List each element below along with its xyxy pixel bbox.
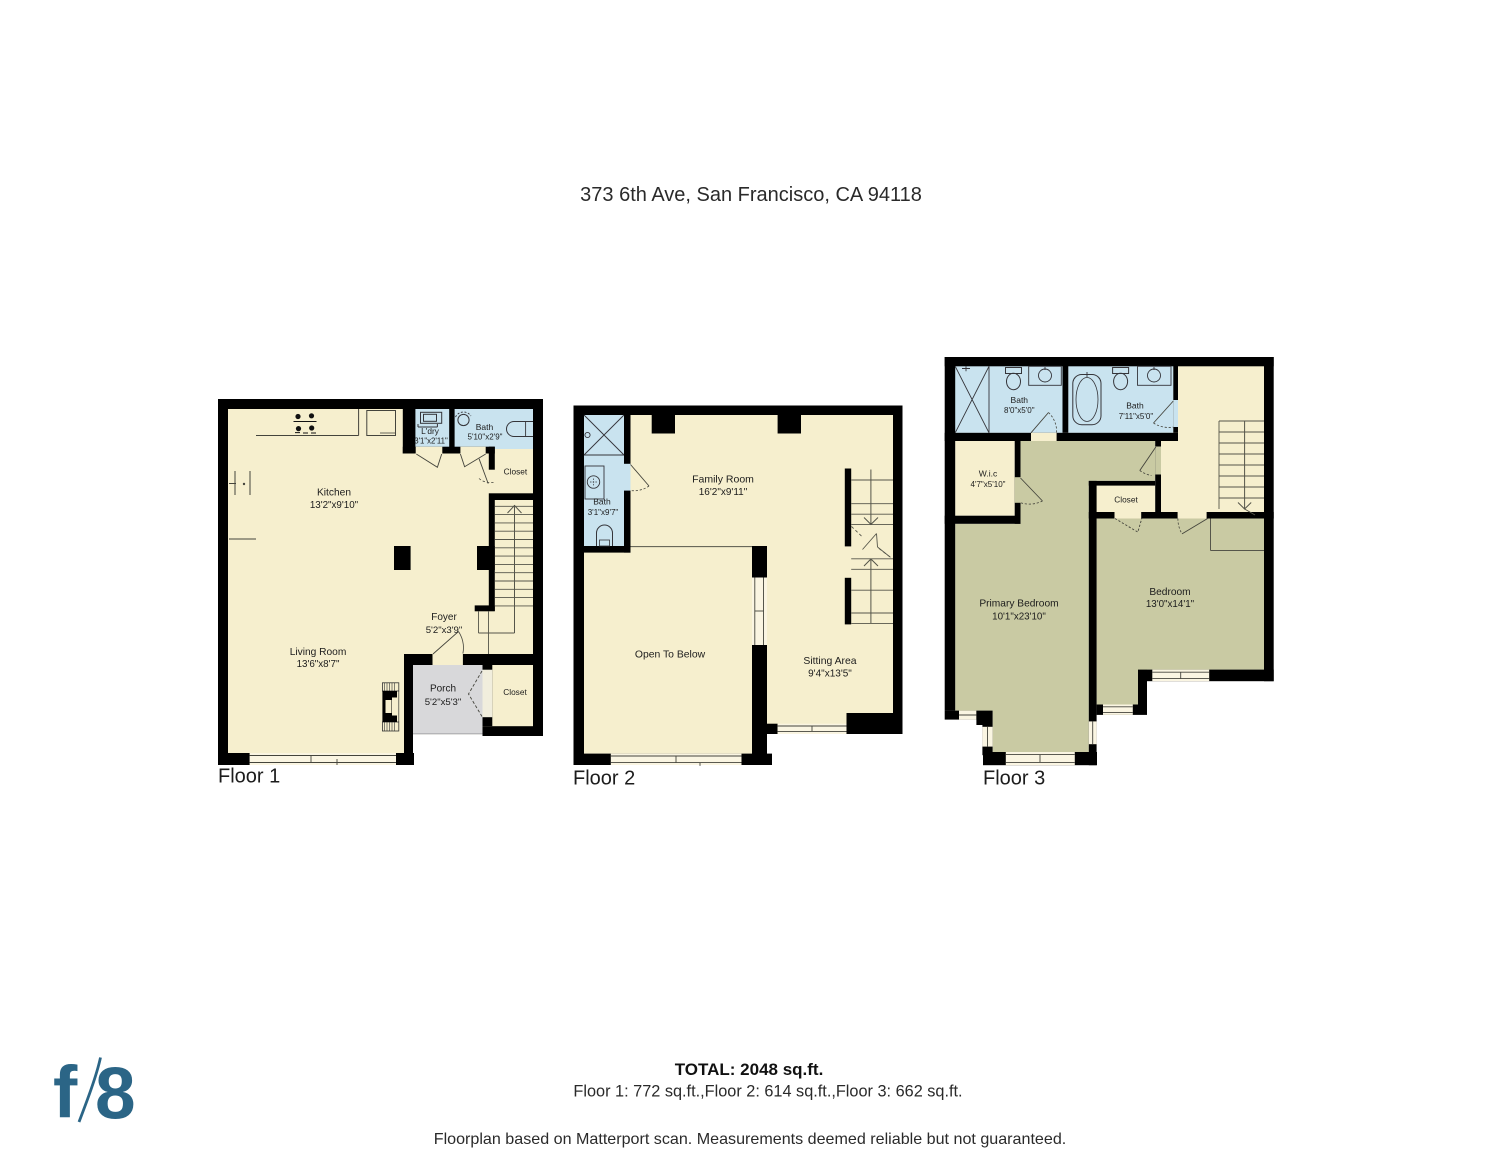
svg-text:Foyer: Foyer <box>431 612 457 623</box>
svg-text:Floorplan based on Matterport: Floorplan based on Matterport scan. Meas… <box>434 1130 1067 1148</box>
svg-text:3'1"x2'11": 3'1"x2'11" <box>414 437 448 446</box>
svg-text:Closet: Closet <box>1114 495 1138 505</box>
svg-text:3'1"x9'7": 3'1"x9'7" <box>588 508 619 517</box>
svg-text:10'1"x23'10": 10'1"x23'10" <box>992 612 1046 623</box>
svg-text:13'6"x8'7": 13'6"x8'7" <box>297 659 340 670</box>
svg-text:4'7"x5'10": 4'7"x5'10" <box>971 480 1006 489</box>
svg-text:16'2"x9'11": 16'2"x9'11" <box>699 487 748 498</box>
svg-text:Bath: Bath <box>593 497 611 507</box>
svg-text:Primary Bedroom: Primary Bedroom <box>979 599 1058 610</box>
svg-text:Floor 1: 772 sq.ft.,Floor 2: 6: Floor 1: 772 sq.ft.,Floor 2: 614 sq.ft.,… <box>573 1083 962 1101</box>
svg-text:f: f <box>53 1052 78 1133</box>
svg-text:TOTAL: 2048 sq.ft.: TOTAL: 2048 sq.ft. <box>675 1060 824 1079</box>
svg-text:5'2"x5'3": 5'2"x5'3" <box>425 697 462 708</box>
svg-text:Floor 2: Floor 2 <box>573 768 635 790</box>
svg-text:Family Room: Family Room <box>692 474 754 486</box>
svg-text:Porch: Porch <box>430 684 456 695</box>
svg-text:8'0"x5'0": 8'0"x5'0" <box>1004 406 1035 415</box>
svg-text:Floor 3: Floor 3 <box>983 768 1045 790</box>
svg-text:8: 8 <box>95 1054 136 1135</box>
svg-text:5'10"x2'9": 5'10"x2'9" <box>468 433 503 442</box>
svg-text:13'2"x9'10": 13'2"x9'10" <box>310 500 359 511</box>
svg-text:Open To Below: Open To Below <box>635 650 706 661</box>
svg-text:13'0"x14'1": 13'0"x14'1" <box>1146 599 1195 610</box>
svg-text:Sitting Area: Sitting Area <box>803 656 856 667</box>
svg-text:Kitchen: Kitchen <box>317 488 351 499</box>
svg-text:Bedroom: Bedroom <box>1149 587 1190 598</box>
svg-text:Bath: Bath <box>1126 401 1144 411</box>
svg-text:W.i.c: W.i.c <box>979 469 998 479</box>
svg-text:L'dry: L'dry <box>421 426 440 436</box>
svg-text:Closet: Closet <box>503 687 527 697</box>
svg-text:Bath: Bath <box>1011 395 1029 405</box>
svg-text:373 6th Ave, San Francisco, CA: 373 6th Ave, San Francisco, CA 94118 <box>580 184 922 206</box>
svg-text:Bath: Bath <box>476 422 494 432</box>
svg-text:7'11"x5'0": 7'11"x5'0" <box>1119 412 1154 421</box>
svg-text:Living Room: Living Room <box>290 647 347 658</box>
svg-text:5'2"x3'9": 5'2"x3'9" <box>426 625 463 636</box>
svg-text:9'4"x13'5": 9'4"x13'5" <box>808 669 852 680</box>
svg-text:Closet: Closet <box>504 467 528 477</box>
svg-text:Floor 1: Floor 1 <box>218 766 280 788</box>
